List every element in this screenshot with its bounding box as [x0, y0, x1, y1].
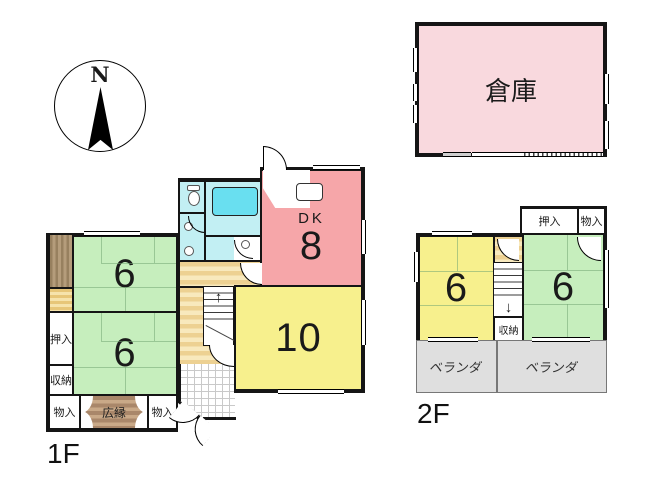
- closet-shunou-2f-label: 収納: [499, 322, 519, 337]
- stairs-1f: ↑: [203, 286, 234, 346]
- tatami-line: [125, 367, 126, 394]
- warehouse-opening: [472, 152, 524, 157]
- window: [604, 121, 609, 149]
- stairs-2f: ↓: [493, 262, 524, 318]
- genkan-left-wall: [178, 364, 181, 401]
- tatami-line: [567, 235, 568, 270]
- hiroen-label: 広縁: [102, 404, 126, 421]
- window: [432, 231, 472, 236]
- window: [413, 84, 418, 101]
- closet-shunou-2f: 収納: [493, 316, 524, 342]
- tatami-line: [101, 341, 176, 342]
- room-6-2f-left: 6: [416, 233, 495, 342]
- yellow-strip: [46, 287, 74, 314]
- window: [604, 250, 609, 308]
- veranda-left-label: ベランダ: [429, 357, 484, 376]
- closet-shunou-1f: 収納: [46, 364, 74, 396]
- tatami-line: [154, 313, 155, 341]
- toilet-icon: [188, 191, 200, 206]
- warehouse-shutter: [524, 152, 603, 157]
- changing-room: [204, 235, 262, 262]
- tatami-room-6-upper: 6: [72, 233, 178, 313]
- stairs-down-arrow-icon: ↓: [494, 299, 523, 316]
- dk-room-size: 8: [300, 227, 323, 265]
- door-arc-icon: [234, 240, 253, 259]
- genkan-bottom-wall: [203, 417, 236, 420]
- compass: N: [54, 60, 146, 152]
- stairs-up-arrow-icon: ↑: [204, 289, 233, 306]
- closet-oshiire-2f: 押入: [520, 206, 579, 235]
- living-room-10-label: 10: [275, 316, 322, 361]
- room-6-2f-right-label: 6: [552, 265, 575, 310]
- bath-room: [204, 178, 262, 237]
- window: [428, 337, 478, 342]
- closet-monoire-left: 物入: [46, 394, 81, 432]
- window: [313, 165, 360, 170]
- closet-monoire-2f: 物入: [577, 206, 607, 235]
- tatami-line: [101, 237, 102, 263]
- tatami-line: [524, 304, 603, 305]
- floor2-label: 2F: [417, 398, 450, 430]
- window: [84, 231, 140, 236]
- kitchen-counter: [296, 183, 323, 201]
- closet-monoire-left-label: 物入: [54, 404, 76, 420]
- closet-oshiire-2f-label: 押入: [539, 213, 561, 229]
- window: [414, 252, 419, 282]
- veranda-right: ベランダ: [497, 340, 607, 393]
- curtain-icon: [135, 411, 147, 428]
- tatami-line: [567, 304, 568, 340]
- closet-oshiire-1f: 押入: [46, 311, 74, 366]
- room-6-2f-right: 6: [522, 233, 607, 342]
- window: [413, 105, 418, 123]
- window: [361, 300, 366, 345]
- tatami-line: [420, 271, 493, 272]
- tatami-line: [420, 305, 493, 306]
- tatami-line: [125, 287, 126, 311]
- window: [532, 337, 590, 342]
- warehouse: 倉庫: [415, 22, 607, 157]
- engawa-strip: [46, 233, 74, 290]
- hiroen-veranda-room: 広縁: [79, 394, 149, 432]
- compass-north-label: N: [55, 62, 145, 87]
- door-arc-icon: [497, 239, 519, 261]
- living-room-10: 10: [234, 285, 365, 393]
- bathtub-icon: [212, 187, 258, 216]
- closet-oshiire-1f-label: 押入: [50, 331, 72, 347]
- compass-needle-icon: [88, 87, 113, 150]
- tatami-line: [101, 313, 102, 341]
- window: [604, 74, 609, 104]
- warehouse-opening: [443, 152, 471, 157]
- tatami-line: [524, 270, 603, 271]
- veranda-left: ベランダ: [416, 340, 497, 393]
- veranda-right-label: ベランダ: [524, 357, 579, 376]
- window: [413, 48, 418, 72]
- floor1-label: 1F: [47, 438, 80, 470]
- tatami-line: [101, 263, 176, 264]
- tatami-line: [154, 237, 155, 263]
- closet-shunou-1f-label: 収納: [50, 372, 72, 388]
- window: [278, 389, 344, 394]
- curtain-icon: [81, 411, 93, 428]
- washroom: [178, 212, 206, 262]
- toilet-room: [178, 178, 206, 214]
- sink-icon: [184, 246, 194, 256]
- back-door-arc-icon: [263, 146, 287, 170]
- floorplan-canvas: N 押入 収納 物入 広縁 物入 6 6: [0, 0, 652, 489]
- tatami-line: [457, 237, 458, 271]
- changing-room-floor: [206, 237, 234, 260]
- door-arc-icon: [577, 237, 601, 261]
- closet-monoire-2f-label: 物入: [581, 213, 603, 229]
- warehouse-label: 倉庫: [485, 71, 537, 108]
- window: [361, 220, 366, 254]
- stairs-winder-line: [206, 325, 238, 343]
- tatami-room-6-lower: 6: [72, 311, 178, 396]
- stairs-2f-landing: [493, 233, 524, 264]
